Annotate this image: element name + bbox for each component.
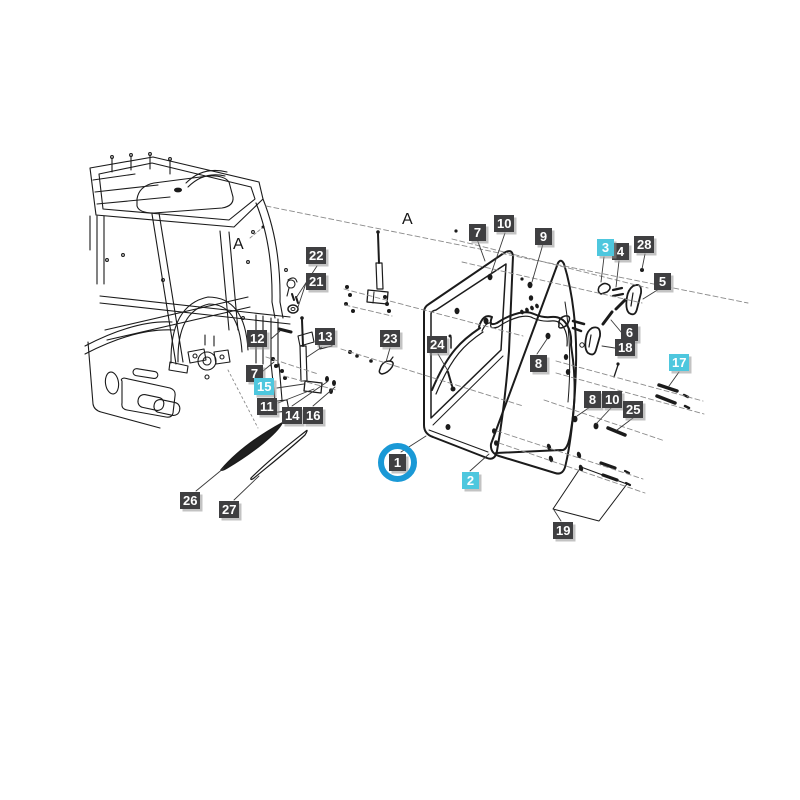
selection-ring (378, 443, 417, 482)
part-label-8b[interactable]: 8 (584, 391, 601, 408)
part-label-24[interactable]: 24 (427, 336, 447, 353)
part-label-2[interactable]: 2 (462, 472, 479, 489)
part-label-4[interactable]: 4 (612, 243, 629, 260)
part-label-7a[interactable]: 7 (469, 224, 486, 241)
part-label-3[interactable]: 3 (597, 239, 614, 256)
cab-frame-drawing (85, 153, 332, 428)
parts-diagram: A A 1 2 4 3 5 6 7 7 8 8 9 10 10 11 12 13… (0, 0, 800, 800)
part-label-22[interactable]: 22 (306, 247, 326, 264)
door-seal-part (424, 251, 513, 459)
glass-pane-part (553, 467, 627, 521)
diagram-artwork (0, 0, 800, 800)
part-label-11[interactable]: 11 (257, 398, 277, 415)
axis-label-a1: A (233, 236, 244, 254)
part-label-15[interactable]: 15 (254, 378, 274, 395)
part-label-25[interactable]: 25 (623, 401, 643, 418)
part-label-17[interactable]: 17 (669, 354, 689, 371)
part-label-28[interactable]: 28 (634, 236, 654, 253)
part-label-18[interactable]: 18 (615, 339, 635, 356)
part-label-23[interactable]: 23 (380, 330, 400, 347)
part-label-19[interactable]: 19 (553, 522, 573, 539)
part-label-5[interactable]: 5 (654, 273, 671, 290)
part-label-26[interactable]: 26 (180, 492, 200, 509)
part-label-12[interactable]: 12 (247, 330, 267, 347)
blade-seals (221, 423, 307, 480)
part-label-8a[interactable]: 8 (530, 355, 547, 372)
part-label-13[interactable]: 13 (315, 328, 335, 345)
part-label-21[interactable]: 21 (306, 273, 326, 290)
gas-strut-upper (367, 230, 388, 304)
part-label-16[interactable]: 16 (303, 407, 323, 424)
part-label-10b[interactable]: 10 (602, 391, 622, 408)
window-glass-frame-part (432, 303, 575, 453)
axis-label-a2: A (402, 211, 413, 229)
part-label-10a[interactable]: 10 (494, 215, 514, 232)
part-label-14[interactable]: 14 (282, 407, 302, 424)
part-label-9[interactable]: 9 (535, 228, 552, 245)
part-label-27[interactable]: 27 (219, 501, 239, 518)
